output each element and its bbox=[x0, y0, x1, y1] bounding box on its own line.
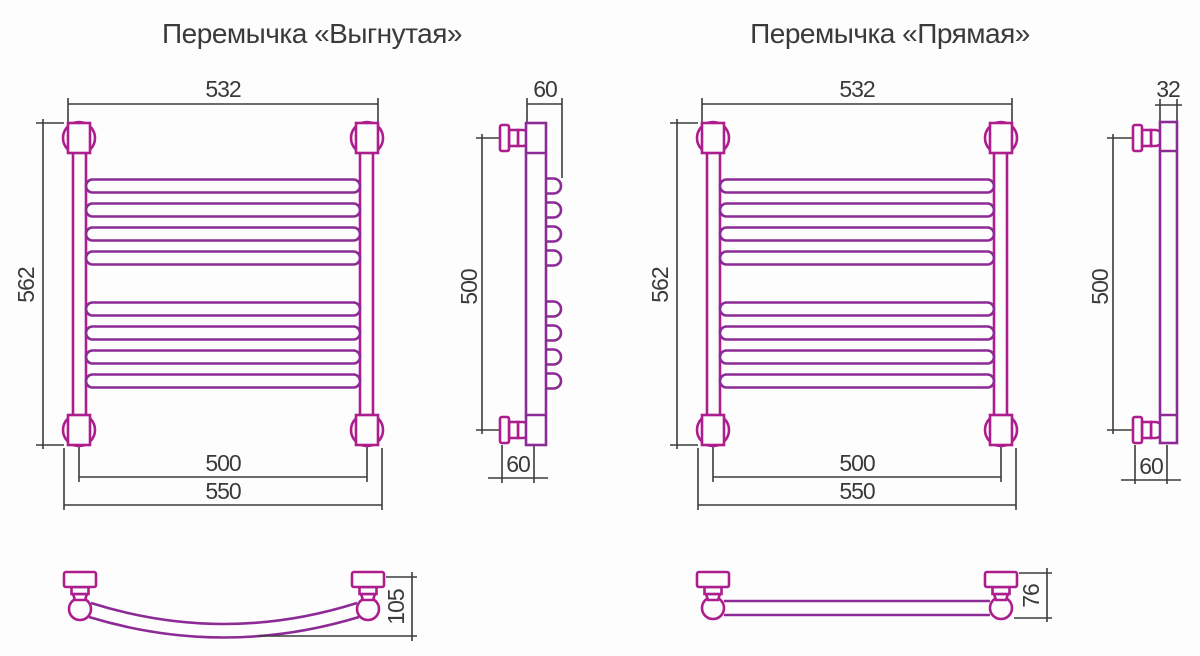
rung bbox=[720, 351, 994, 364]
wall-flange bbox=[64, 572, 96, 587]
dim-line bbox=[1155, 99, 1182, 122]
rung bbox=[86, 204, 360, 217]
technical-drawing: Перемычка «Выгнутая» 532 562 500 550 bbox=[0, 0, 1200, 656]
dim-value: 105 bbox=[383, 589, 409, 625]
dim-bar-depth: 105 bbox=[258, 572, 417, 641]
dim-line bbox=[36, 119, 64, 449]
dim-width-inner: 500 bbox=[713, 447, 1001, 482]
dim-value: 550 bbox=[839, 478, 875, 504]
dim-side-height: 500 bbox=[456, 134, 500, 434]
bracket-sleeve bbox=[68, 415, 90, 445]
bracket-nut bbox=[509, 422, 518, 438]
rung bbox=[86, 351, 360, 364]
bracket-sleeve bbox=[356, 123, 378, 153]
rung bbox=[86, 303, 360, 316]
wall-flange bbox=[500, 125, 509, 151]
dim-height: 562 bbox=[647, 119, 698, 449]
wall-flange bbox=[352, 572, 384, 587]
wall-flange bbox=[985, 572, 1017, 587]
rung bbox=[720, 375, 994, 388]
dim-width-top: 532 bbox=[68, 76, 378, 123]
side-product-curved bbox=[500, 123, 561, 445]
rung bbox=[86, 327, 360, 340]
dim-value: 562 bbox=[647, 267, 673, 303]
right-side-view: 32 500 60 bbox=[1087, 76, 1182, 484]
dim-value: 60 bbox=[506, 451, 530, 477]
dim-depth-bottom: 60 bbox=[488, 445, 548, 483]
right-unit: Перемычка «Прямая» 532 562 500 550 bbox=[647, 18, 1182, 622]
rail-tube-side bbox=[1160, 122, 1177, 443]
dim-width-inner: 500 bbox=[79, 447, 367, 482]
bracket-sleeve bbox=[990, 415, 1012, 445]
bracket-sleeve bbox=[990, 123, 1012, 153]
rung bbox=[86, 180, 360, 193]
rung-group bbox=[86, 180, 360, 388]
rail-tube-side bbox=[526, 123, 546, 445]
left-front-product bbox=[63, 122, 383, 446]
wall-flange bbox=[697, 572, 729, 587]
drawing-sheet: Перемычка «Выгнутая» 532 562 500 550 bbox=[0, 0, 1200, 656]
curved-bar-outline bbox=[89, 617, 359, 638]
rung bbox=[720, 327, 994, 340]
side-product-straight bbox=[1133, 122, 1177, 443]
bracket-nut bbox=[509, 130, 518, 146]
right-rail-tube bbox=[360, 138, 373, 430]
right-rail-tube bbox=[994, 138, 1007, 430]
wall-flange bbox=[500, 417, 509, 443]
dim-bar-depth: 76 bbox=[1014, 568, 1052, 622]
dim-value: 550 bbox=[205, 478, 241, 504]
dim-side-height: 500 bbox=[1087, 134, 1133, 434]
dim-width-top: 532 bbox=[702, 76, 1012, 123]
dim-value: 76 bbox=[1018, 584, 1044, 608]
bracket-sleeve bbox=[68, 123, 90, 153]
bracket-sleeve bbox=[702, 123, 724, 153]
dim-value: 500 bbox=[456, 269, 482, 305]
dim-depth-bottom: 60 bbox=[1121, 445, 1181, 484]
rung bbox=[720, 180, 994, 193]
dim-value: 60 bbox=[533, 76, 557, 102]
dim-value: 532 bbox=[839, 76, 875, 102]
dim-value: 500 bbox=[839, 450, 875, 476]
bracket-sleeve bbox=[702, 415, 724, 445]
wall-flange bbox=[1133, 125, 1142, 151]
rung bbox=[86, 375, 360, 388]
rung bbox=[720, 228, 994, 241]
left-rail-tube bbox=[73, 138, 86, 430]
dim-value: 32 bbox=[1156, 76, 1180, 102]
left-unit: Перемычка «Выгнутая» 532 562 500 550 bbox=[13, 18, 562, 641]
dim-line bbox=[670, 119, 698, 449]
dim-value: 60 bbox=[1139, 453, 1163, 479]
bracket-sleeve bbox=[356, 415, 378, 445]
bracket-nut bbox=[1142, 422, 1151, 438]
right-unit-title: Перемычка «Прямая» bbox=[750, 18, 1030, 49]
right-front-product bbox=[697, 122, 1017, 446]
left-bottom-view: 105 bbox=[64, 572, 417, 641]
rung bbox=[720, 204, 994, 217]
rung bbox=[720, 252, 994, 265]
rung bbox=[720, 303, 994, 316]
dim-value: 562 bbox=[13, 267, 39, 303]
wall-flange bbox=[1133, 417, 1142, 443]
left-side-view: 60 500 60 bbox=[456, 76, 562, 483]
left-unit-title: Перемычка «Выгнутая» bbox=[162, 18, 462, 49]
left-rail-tube bbox=[707, 138, 720, 430]
dim-value: 532 bbox=[205, 76, 241, 102]
dim-depth-top: 32 bbox=[1155, 76, 1182, 122]
dim-value: 500 bbox=[205, 450, 241, 476]
rung bbox=[86, 228, 360, 241]
right-bottom-view: 76 bbox=[697, 568, 1052, 622]
rung-group bbox=[720, 180, 994, 388]
rung bbox=[86, 252, 360, 265]
curved-bar-outline bbox=[91, 603, 357, 624]
dim-value: 500 bbox=[1087, 269, 1113, 305]
bracket-nut bbox=[1142, 130, 1151, 146]
dim-height: 562 bbox=[13, 119, 64, 449]
straight-bar-outline bbox=[724, 601, 990, 615]
